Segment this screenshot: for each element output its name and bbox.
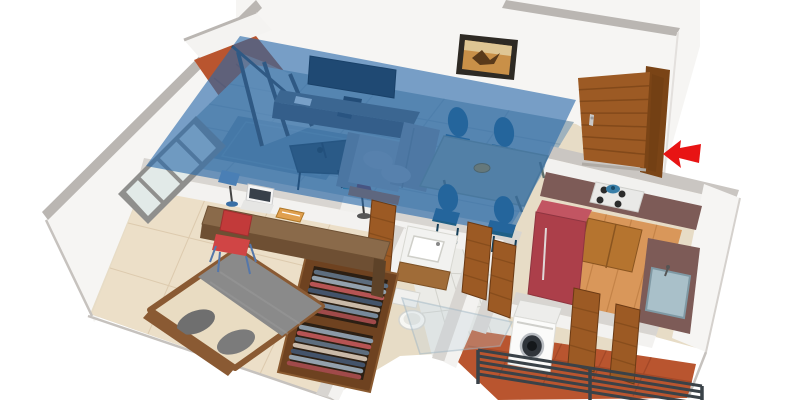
door-handle-knob <box>591 117 594 120</box>
apartment-floor-plan-image <box>0 0 800 400</box>
wall-art <box>456 34 518 80</box>
burner-4 <box>615 201 622 208</box>
vanity-faucet <box>436 242 440 246</box>
burner-2 <box>619 191 626 198</box>
floor-plan-scene <box>0 0 800 400</box>
pot-lid <box>611 186 615 190</box>
burner-3 <box>597 197 604 204</box>
washing-machine-drum <box>527 341 537 351</box>
sink-faucet-head <box>666 265 670 269</box>
floor-lamp-base <box>357 213 371 219</box>
desk-lamp-base <box>226 201 238 207</box>
kitchen-sink <box>646 268 690 318</box>
